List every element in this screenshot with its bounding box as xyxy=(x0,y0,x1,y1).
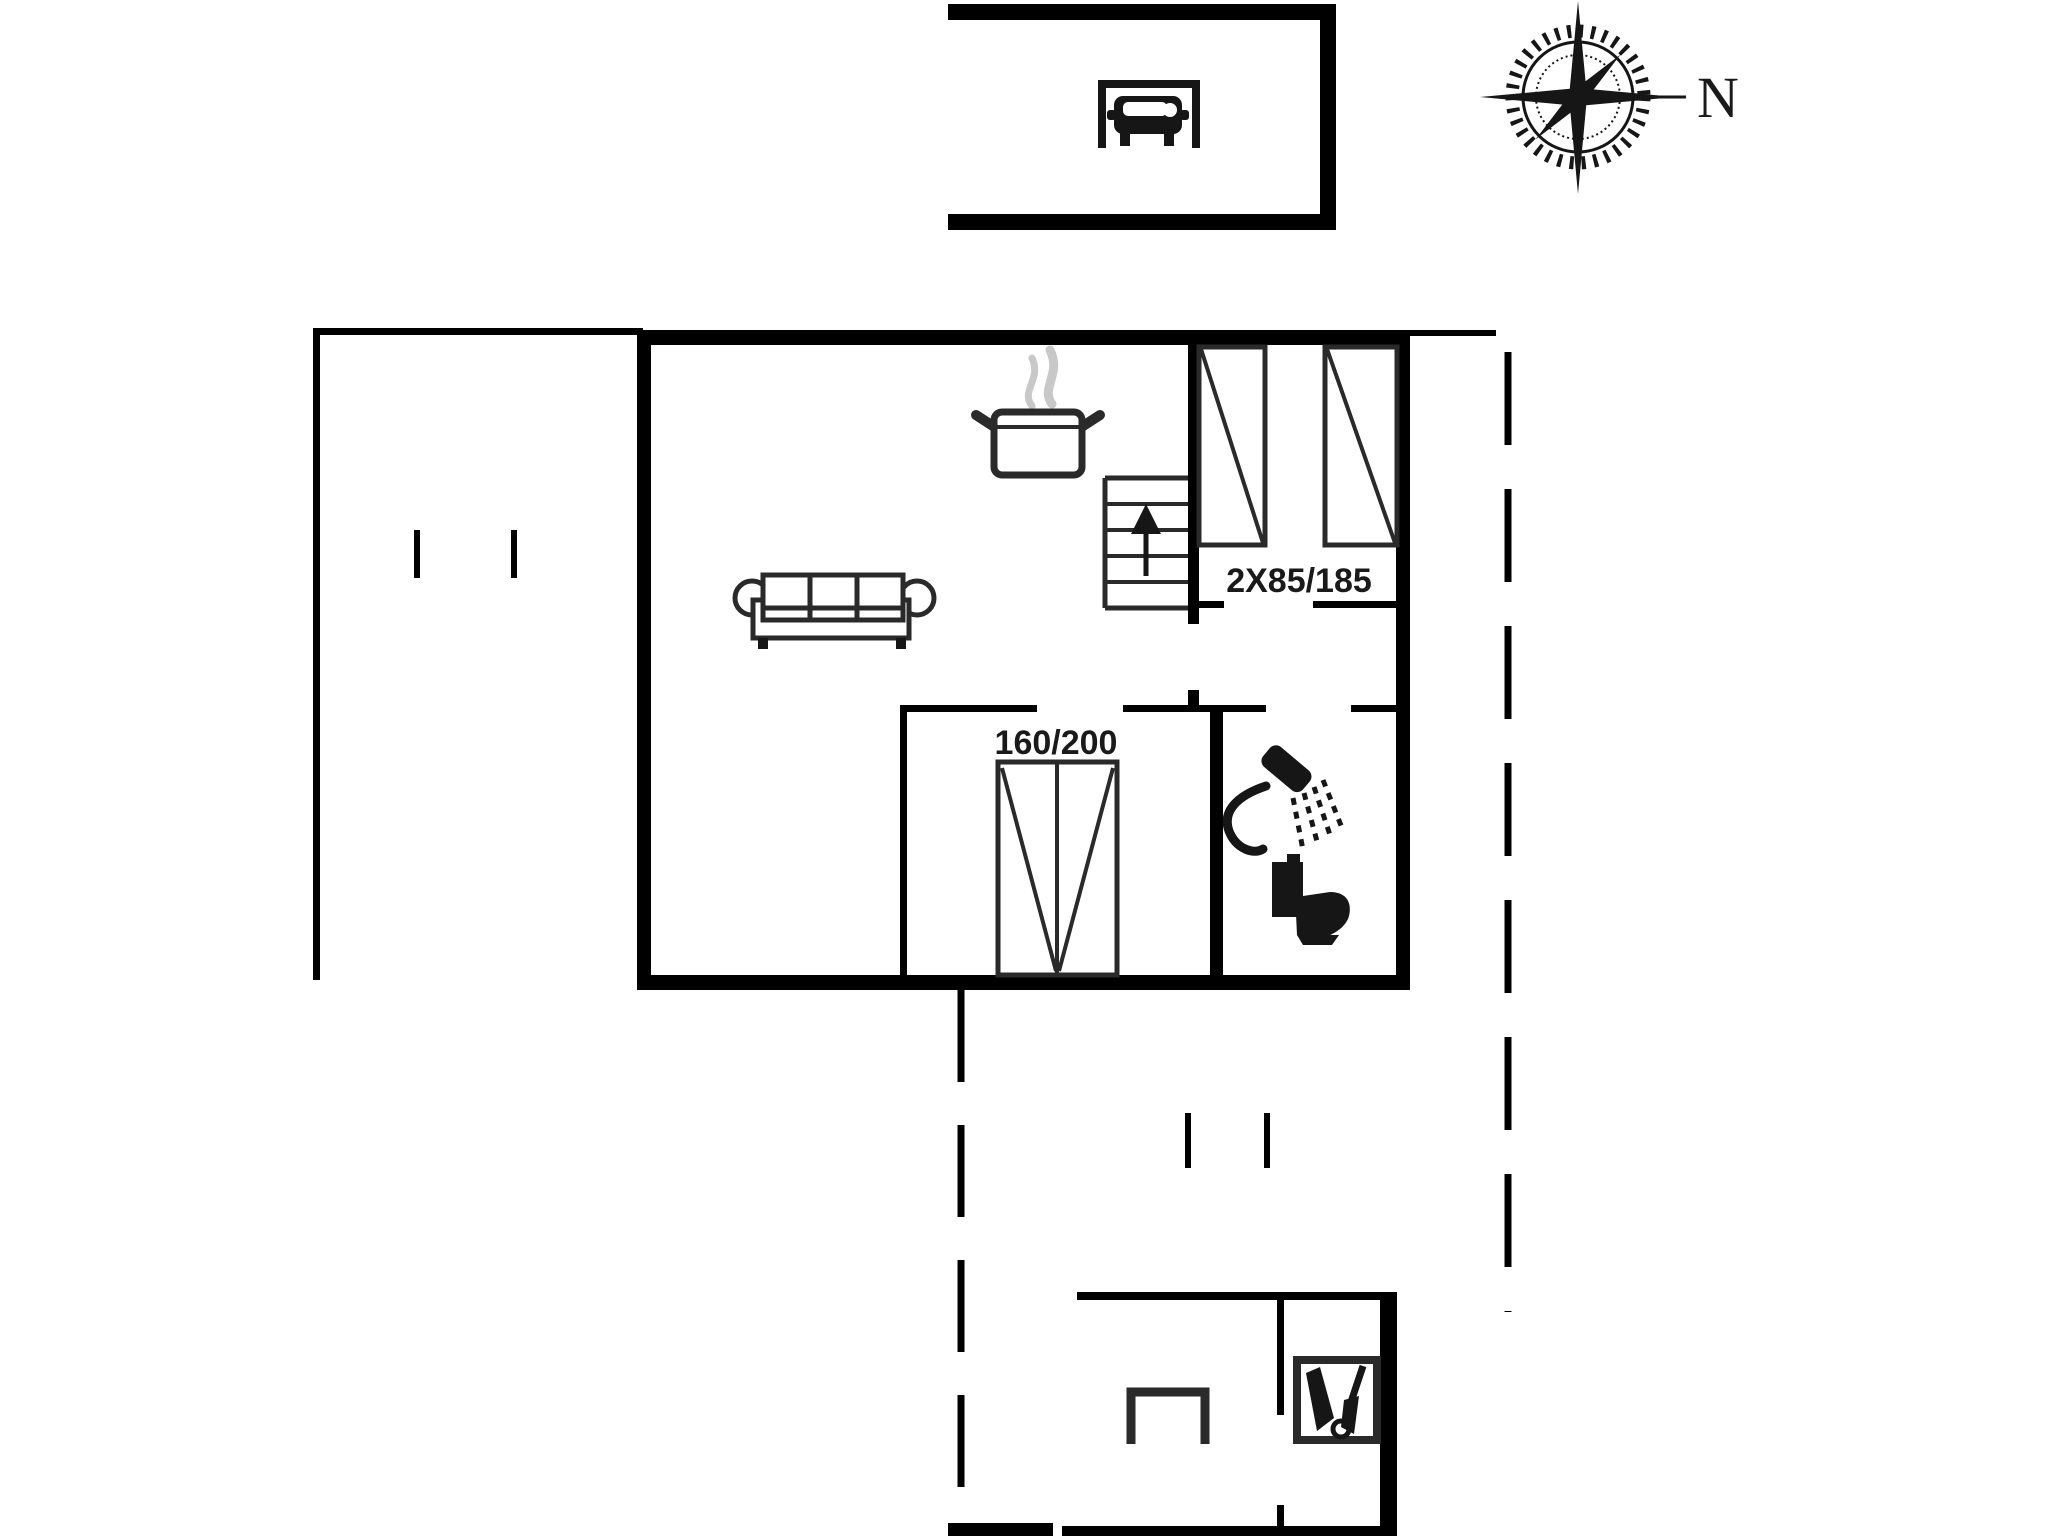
wall-segment xyxy=(1188,601,1224,608)
toilet-icon xyxy=(1272,854,1350,945)
shower-icon xyxy=(1227,742,1342,851)
stairs xyxy=(1105,478,1188,608)
cooking-pot-icon xyxy=(976,350,1100,475)
interior-walls xyxy=(900,345,1397,975)
twin-bedroom: 2X85/185 xyxy=(1199,347,1397,600)
wall-segment xyxy=(313,328,320,980)
wall-segment xyxy=(948,214,1336,230)
wall-segment xyxy=(313,328,643,335)
steam-icon xyxy=(1048,350,1053,404)
sofa-icon xyxy=(735,575,934,649)
wall-segment xyxy=(1380,1292,1397,1536)
wall-segment xyxy=(948,1523,1053,1536)
double-bedroom: 160/200 xyxy=(995,724,1118,975)
living-kitchen xyxy=(735,350,1100,649)
wall-segment xyxy=(1410,330,1496,336)
opening-tick xyxy=(511,530,517,578)
wall-segment xyxy=(900,705,1037,712)
wall-segment xyxy=(1351,705,1396,712)
double-bed-icon xyxy=(998,762,1117,975)
floor-plan-canvas: N xyxy=(0,0,2048,1536)
wall-segment xyxy=(900,705,907,975)
outbuilding xyxy=(948,1292,1397,1536)
north-label: N xyxy=(1697,65,1739,130)
garage xyxy=(948,4,1336,230)
stairs-up-arrow-icon xyxy=(1131,504,1161,576)
wall-segment xyxy=(1320,4,1336,230)
wall-segment xyxy=(1077,1292,1383,1300)
wall-segment xyxy=(1123,705,1266,712)
wall-segment xyxy=(637,330,1410,345)
compass-rose-icon: N xyxy=(1480,1,1739,194)
wall-segment xyxy=(637,330,651,990)
bed-size-label: 2X85/185 xyxy=(1226,562,1372,600)
terrace-outline xyxy=(313,328,643,980)
floor-plan-drawing: N xyxy=(0,0,2048,1536)
bed-size-label: 160/200 xyxy=(995,724,1118,762)
wall-segment xyxy=(1277,1292,1284,1415)
wall-segment xyxy=(1277,1505,1284,1536)
wall-segment xyxy=(1062,1526,1277,1536)
opening-tick xyxy=(1264,1113,1270,1168)
opening-tick xyxy=(1185,1113,1191,1168)
opening-tick xyxy=(414,530,420,578)
bed-icon xyxy=(1199,347,1265,545)
garden-tools-icon xyxy=(1297,1360,1377,1440)
bed-icon xyxy=(1325,347,1397,545)
wall-segment xyxy=(1284,1526,1380,1536)
wall-segment xyxy=(948,4,1336,20)
table-icon xyxy=(1131,1392,1205,1444)
car-icon xyxy=(1102,84,1196,148)
bathroom xyxy=(1227,742,1350,945)
wall-segment xyxy=(1313,601,1397,608)
steam-icon xyxy=(1028,358,1034,406)
wall-segment xyxy=(1210,705,1223,975)
